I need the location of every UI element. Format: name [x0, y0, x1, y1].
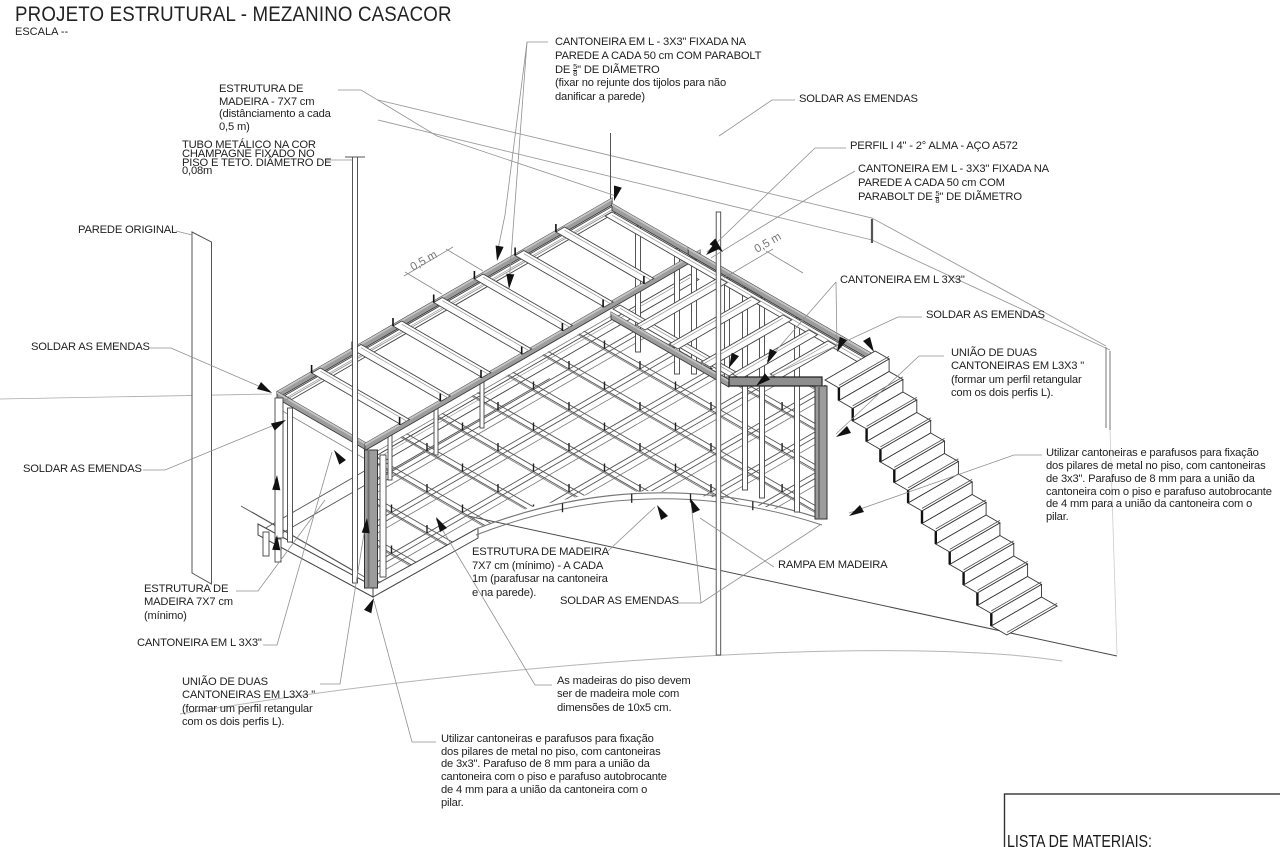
- svg-text:0,5 m: 0,5 m: [409, 249, 440, 274]
- svg-text:LISTA DE MATERIAIS:: LISTA DE MATERIAIS:: [1007, 831, 1152, 847]
